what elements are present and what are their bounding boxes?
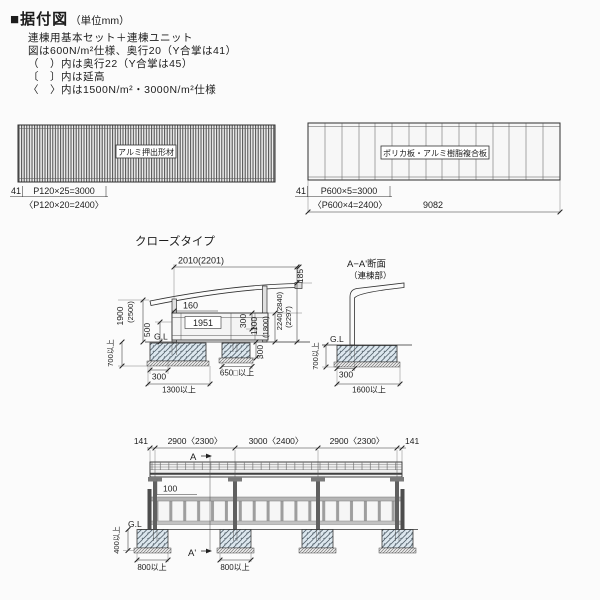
roof-width-dim: 2010(2201) <box>178 256 224 266</box>
roof-panel-left-drawing: アルミ押出形材 41 P120×25=3000 〈P120×20=2400〉 <box>10 125 275 210</box>
panel-right-end-dim: 41 <box>296 186 306 196</box>
aa-ground-level-label: G.L <box>330 334 344 344</box>
aa-foot-left-dim: 300 <box>339 370 353 380</box>
total-height-alt-dim: (2297) <box>284 306 293 328</box>
drawing-canvas: アルミ押出形材 41 P120×25=3000 〈P120×20=2400〉 ポ… <box>0 0 600 600</box>
panel-left-pitch-dim: P120×25=3000 <box>33 186 95 196</box>
close-type-section-drawing: クローズタイプ 1951 160 G.L <box>106 234 312 395</box>
foot-right-dim: 650□以上 <box>220 369 254 378</box>
elevation-foundations <box>134 530 416 554</box>
foot-width-dim: 1300以上 <box>162 386 196 395</box>
eave-dim: 160 <box>183 301 198 311</box>
rail-height-dim: 300 <box>238 314 248 328</box>
front-elevation-drawing: 141 2900〈2300〉 3000〈2400〉 2900〈2300〉 141… <box>112 436 419 572</box>
elev-roof-gap-dim: 100 <box>163 484 177 494</box>
panel-right-material-label: ポリカ板・アルミ樹脂複合板 <box>383 148 487 158</box>
roof-rise-dim: 185 <box>295 269 305 283</box>
panel-right-pitch-dim: P600×5=3000 <box>321 186 378 196</box>
elev-dim-span1: 2900〈2300〉 <box>168 436 223 446</box>
fence-panel-width-dim: 1951 <box>193 318 213 328</box>
section-marker-a: A <box>190 452 197 463</box>
elev-dim-span2: 3000〈2400〉 <box>249 436 304 446</box>
fence-height-dim: 1100 <box>249 317 259 336</box>
elev-dim-141-left: 141 <box>134 436 148 446</box>
height-dim: 1900 <box>115 306 125 325</box>
elev-foot2-dim: 800以上 <box>220 563 249 572</box>
panel-left-end-dim: 41 <box>11 186 21 196</box>
foot-depth-right-dim: 300 <box>255 345 265 359</box>
ground-level-label: G.L <box>154 332 168 342</box>
panel-left-pitch-alt-dim: 〈P120×20=2400〉 <box>24 200 104 210</box>
embed-depth-dim: 700以上 <box>106 339 115 367</box>
lower-height-dim: 500 <box>142 323 152 337</box>
panel-right-pitch-alt-dim: 〈P600×4=2400〉 <box>313 200 388 210</box>
roof-panel-right-drawing: ポリカ板・アルミ樹脂複合板 41 P600×5=3000 〈P600×4=240… <box>295 123 562 214</box>
section-marker-a-prime: A' <box>188 548 196 559</box>
fence-height-alt-dim: (1800) <box>261 316 270 338</box>
elev-dim-span3: 2900〈2300〉 <box>330 436 385 446</box>
elev-embed-depth-dim: 400以上 <box>112 526 121 554</box>
elev-dim-141-right: 141 <box>405 436 419 446</box>
aa-embed-depth-dim: 700以上 <box>311 342 320 370</box>
aa-section-subtitle: （連棟部） <box>349 271 392 281</box>
installation-drawing-page: ■据付図（単位mm） 連棟用基本セット＋連棟ユニット 図は600N/m²仕様、奥… <box>0 0 600 600</box>
aa-section-drawing: A−A'断面 （連棟部） G.L 700以上 300 1600以上 <box>311 258 412 395</box>
aa-section-title: A−A'断面 <box>347 258 386 270</box>
aa-foot-width-dim: 1600以上 <box>352 386 386 395</box>
elev-foot1-dim: 800以上 <box>137 563 166 572</box>
height-alt-dim: (2500) <box>126 301 135 323</box>
close-type-title: クローズタイプ <box>135 234 215 248</box>
foot-left-dim: 300 <box>152 372 166 382</box>
total-height-dim: 2240(2840) <box>275 291 284 330</box>
panel-right-total-dim: 9082 <box>423 200 443 210</box>
panel-left-material-label: アルミ押出形材 <box>118 147 174 157</box>
